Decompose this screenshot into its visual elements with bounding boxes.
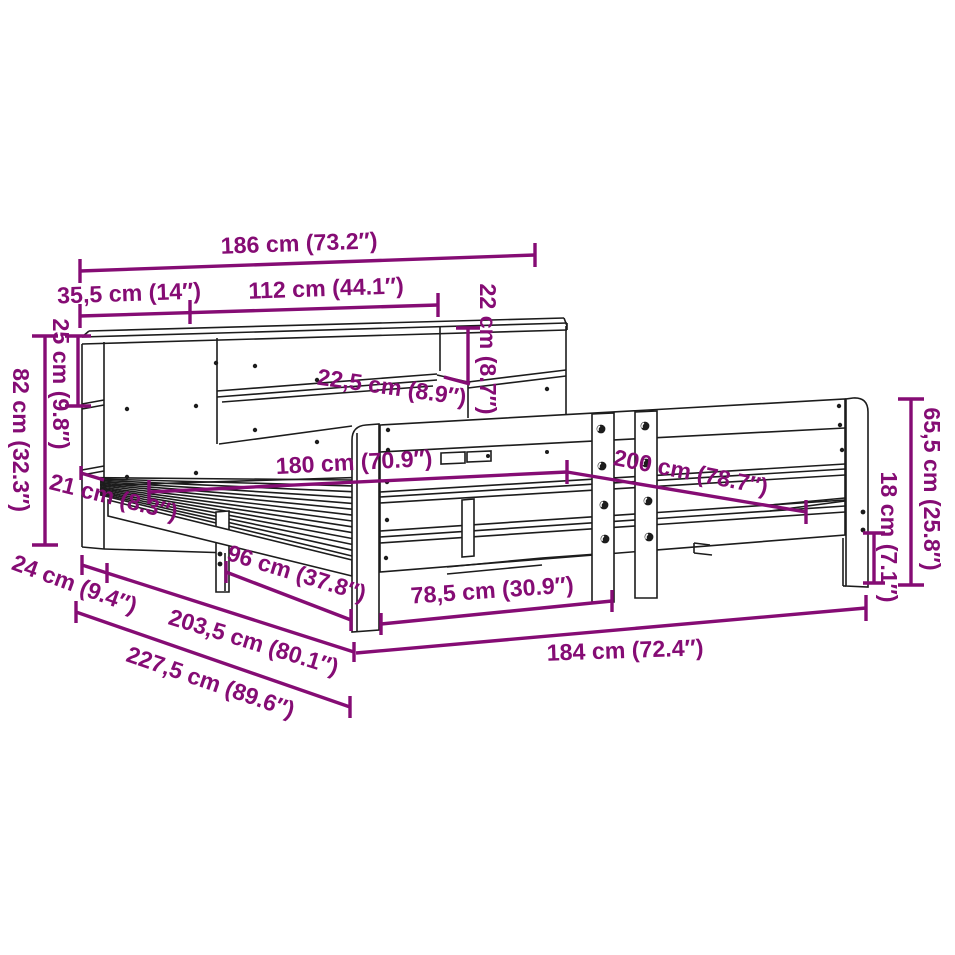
svg-text:35,5 cm (14″): 35,5 cm (14″) [57,277,202,308]
svg-text:18 cm (7.1″): 18 cm (7.1″) [876,472,902,603]
svg-text:25 cm (9.8″): 25 cm (9.8″) [48,319,74,450]
svg-text:82 cm (32.3″): 82 cm (32.3″) [8,368,34,512]
svg-text:186 cm (73.2″): 186 cm (73.2″) [220,227,378,258]
svg-text:112 cm (44.1″): 112 cm (44.1″) [248,272,404,303]
svg-text:22 cm (8.7″): 22 cm (8.7″) [475,284,501,415]
svg-text:65,5 cm (25.8″): 65,5 cm (25.8″) [919,407,945,570]
svg-text:184 cm (72.4″): 184 cm (72.4″) [546,634,704,665]
